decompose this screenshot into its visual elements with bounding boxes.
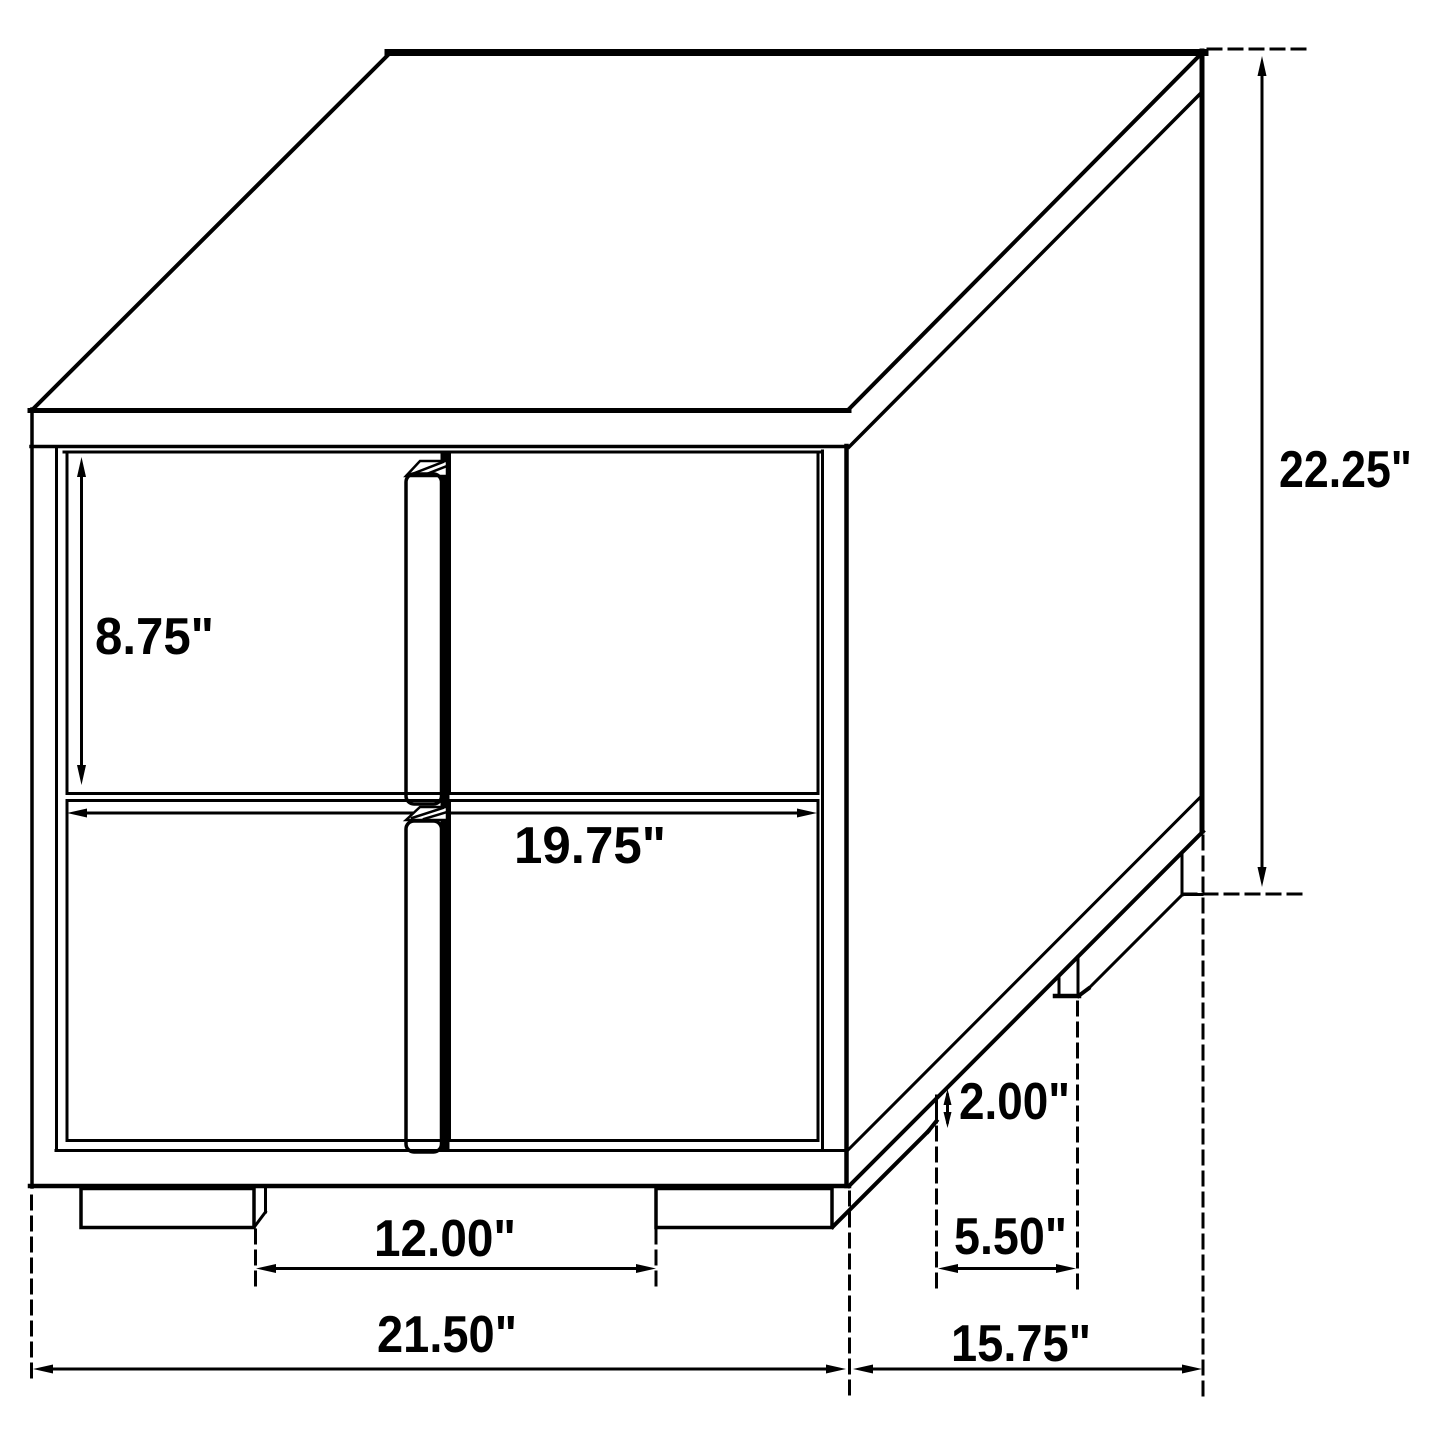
svg-text:15.75": 15.75" bbox=[951, 1314, 1091, 1372]
svg-text:5.50": 5.50" bbox=[954, 1207, 1067, 1265]
svg-text:22.25": 22.25" bbox=[1279, 440, 1412, 498]
svg-text:21.50": 21.50" bbox=[377, 1305, 517, 1363]
svg-text:2.00": 2.00" bbox=[959, 1072, 1070, 1130]
svg-text:12.00": 12.00" bbox=[374, 1209, 516, 1267]
svg-text:8.75": 8.75" bbox=[95, 607, 214, 665]
svg-text:19.75": 19.75" bbox=[514, 816, 666, 874]
